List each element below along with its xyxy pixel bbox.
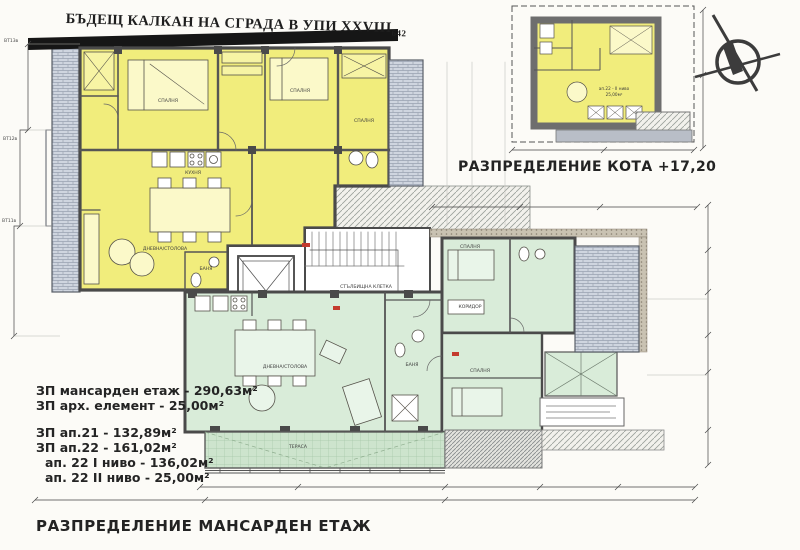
caption-mansard-floor: РАЗПРЕДЕЛЕНИЕ МАНСАРДЕН ЕТАЖ	[36, 517, 371, 535]
drawing-sheet: СПАЛНЯ СПАЛНЯ СПАЛНЯ КУХНЯ ДНЕВНА/СТОЛОВ…	[0, 0, 800, 550]
svg-text:ДНЕВНА/СТОЛОВА: ДНЕВНА/СТОЛОВА	[263, 364, 308, 370]
roof-piece-1	[445, 430, 542, 468]
area-line: ап. 22 I ниво - 136,02м²	[36, 455, 258, 470]
svg-text:СТЪЛБИЩНА КЛЕТКА: СТЪЛБИЩНА КЛЕТКА	[340, 284, 393, 290]
svg-text:СПАЛНЯ: СПАЛНЯ	[290, 88, 310, 94]
page-title-plot-number: 642	[391, 28, 406, 38]
area-line: ЗП ап.22 - 161,02м²	[36, 440, 258, 455]
annotation-box	[540, 398, 624, 426]
right-masonry-wall	[389, 60, 423, 186]
svg-text:СПАЛНЯ: СПАЛНЯ	[354, 118, 374, 124]
svg-text:КОРИДОР: КОРИДОР	[458, 304, 481, 310]
svg-text:ВТ12в: ВТ12в	[3, 136, 18, 142]
svg-text:БАНЯ: БАНЯ	[200, 266, 213, 272]
svg-text:ВТ13в: ВТ13в	[4, 38, 19, 44]
caption-upper-level: РАЗПРЕДЕЛЕНИЕ КОТА +17,20	[458, 159, 716, 175]
svg-text:СПАЛНЯ: СПАЛНЯ	[460, 244, 480, 250]
area-line: ЗП ап.21 - 132,89м²	[36, 425, 258, 440]
right-masonry-firewall	[575, 246, 639, 352]
upper-level-plan: ап.22 - II ниво 25,00м²	[509, 6, 706, 153]
svg-text:ап.22 - II ниво: ап.22 - II ниво	[599, 86, 630, 91]
svg-text:БАНЯ: БАНЯ	[406, 362, 419, 368]
svg-text:25,00м²: 25,00м²	[606, 92, 623, 97]
ap22-room-block	[442, 333, 542, 432]
svg-text:СПАЛНЯ: СПАЛНЯ	[158, 98, 178, 104]
svg-text:СПАЛНЯ: СПАЛНЯ	[470, 368, 490, 374]
svg-text:ВТ11в: ВТ11в	[2, 218, 17, 224]
left-masonry-wall	[46, 44, 80, 292]
roof-hatch	[335, 186, 530, 230]
roof-piece-2	[542, 430, 664, 450]
area-line: ап. 22 II ниво - 25,00м²	[36, 470, 258, 485]
svg-text:КУХНЯ: КУХНЯ	[185, 170, 201, 176]
svg-text:ТЕРАСА: ТЕРАСА	[288, 444, 308, 450]
area-line: ЗП арх. елемент - 25,00м²	[36, 398, 258, 413]
axis-labels: ВТ13в ВТ12в ВТ11в	[2, 38, 19, 224]
north-arrow-icon	[695, 15, 780, 91]
area-line: ЗП мансарден етаж - 290,63м²	[36, 383, 258, 398]
area-summary: ЗП мансарден етаж - 290,63м² ЗП арх. еле…	[36, 383, 258, 485]
svg-text:ДНЕВНА/СТОЛОВА: ДНЕВНА/СТОЛОВА	[143, 246, 188, 252]
